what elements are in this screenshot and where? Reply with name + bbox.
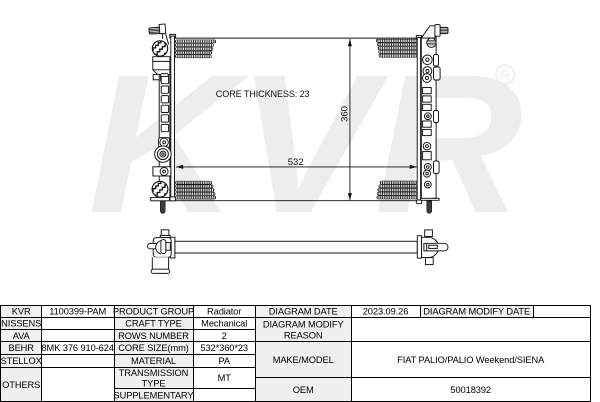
svg-text:STELLOX: STELLOX xyxy=(1,356,42,366)
svg-text:TRANSMISSION: TRANSMISSION xyxy=(119,368,189,378)
svg-text:MT: MT xyxy=(218,373,232,383)
svg-text:50018392: 50018392 xyxy=(450,385,491,395)
svg-text:532*360*23: 532*360*23 xyxy=(200,343,248,353)
svg-text:OTHERS: OTHERS xyxy=(2,380,40,390)
svg-text:DIAGRAM MODIFY DATE: DIAGRAM MODIFY DATE xyxy=(423,306,530,316)
svg-text:FIAT PALIO/PALIO Weekend/SIENA: FIAT PALIO/PALIO Weekend/SIENA xyxy=(397,355,545,365)
svg-text:2: 2 xyxy=(222,331,227,341)
svg-text:CORE THICKNESS: 23: CORE THICKNESS: 23 xyxy=(216,89,310,99)
svg-text:ROWS NUMBER: ROWS NUMBER xyxy=(118,331,189,341)
svg-text:MAKE/MODEL: MAKE/MODEL xyxy=(273,355,334,365)
svg-text:BEHR: BEHR xyxy=(8,343,34,353)
svg-text:532: 532 xyxy=(288,157,304,168)
svg-text:360: 360 xyxy=(340,106,351,122)
svg-text:PRODUCT GROUP: PRODUCT GROUP xyxy=(113,306,194,316)
svg-text:2023.09.26: 2023.09.26 xyxy=(363,306,409,316)
svg-text:REASON: REASON xyxy=(284,331,323,341)
svg-text:DIAGRAM MODIFY: DIAGRAM MODIFY xyxy=(263,320,344,330)
svg-text:8MK 376 910-624: 8MK 376 910-624 xyxy=(41,343,113,353)
svg-text:1100399-PAM: 1100399-PAM xyxy=(49,306,106,316)
svg-text:KVR: KVR xyxy=(12,306,31,316)
svg-text:NISSENS: NISSENS xyxy=(1,319,41,329)
svg-text:CORE SIZE(mm): CORE SIZE(mm) xyxy=(118,343,189,353)
svg-text:DIAGRAM DATE: DIAGRAM DATE xyxy=(269,306,338,316)
svg-text:Mechanical: Mechanical xyxy=(201,319,247,329)
svg-text:PA: PA xyxy=(218,356,230,366)
svg-text:AVA: AVA xyxy=(13,331,31,341)
svg-text:Radiator: Radiator xyxy=(207,306,241,316)
svg-text:SUPPLEMENTARY: SUPPLEMENTARY xyxy=(114,391,194,401)
svg-text:MATERIAL: MATERIAL xyxy=(131,356,176,366)
svg-text:OEM: OEM xyxy=(293,385,314,395)
svg-text:R: R xyxy=(500,67,510,83)
svg-text:TYPE: TYPE xyxy=(142,378,166,388)
svg-text:CRAFT TYPE: CRAFT TYPE xyxy=(125,319,182,329)
